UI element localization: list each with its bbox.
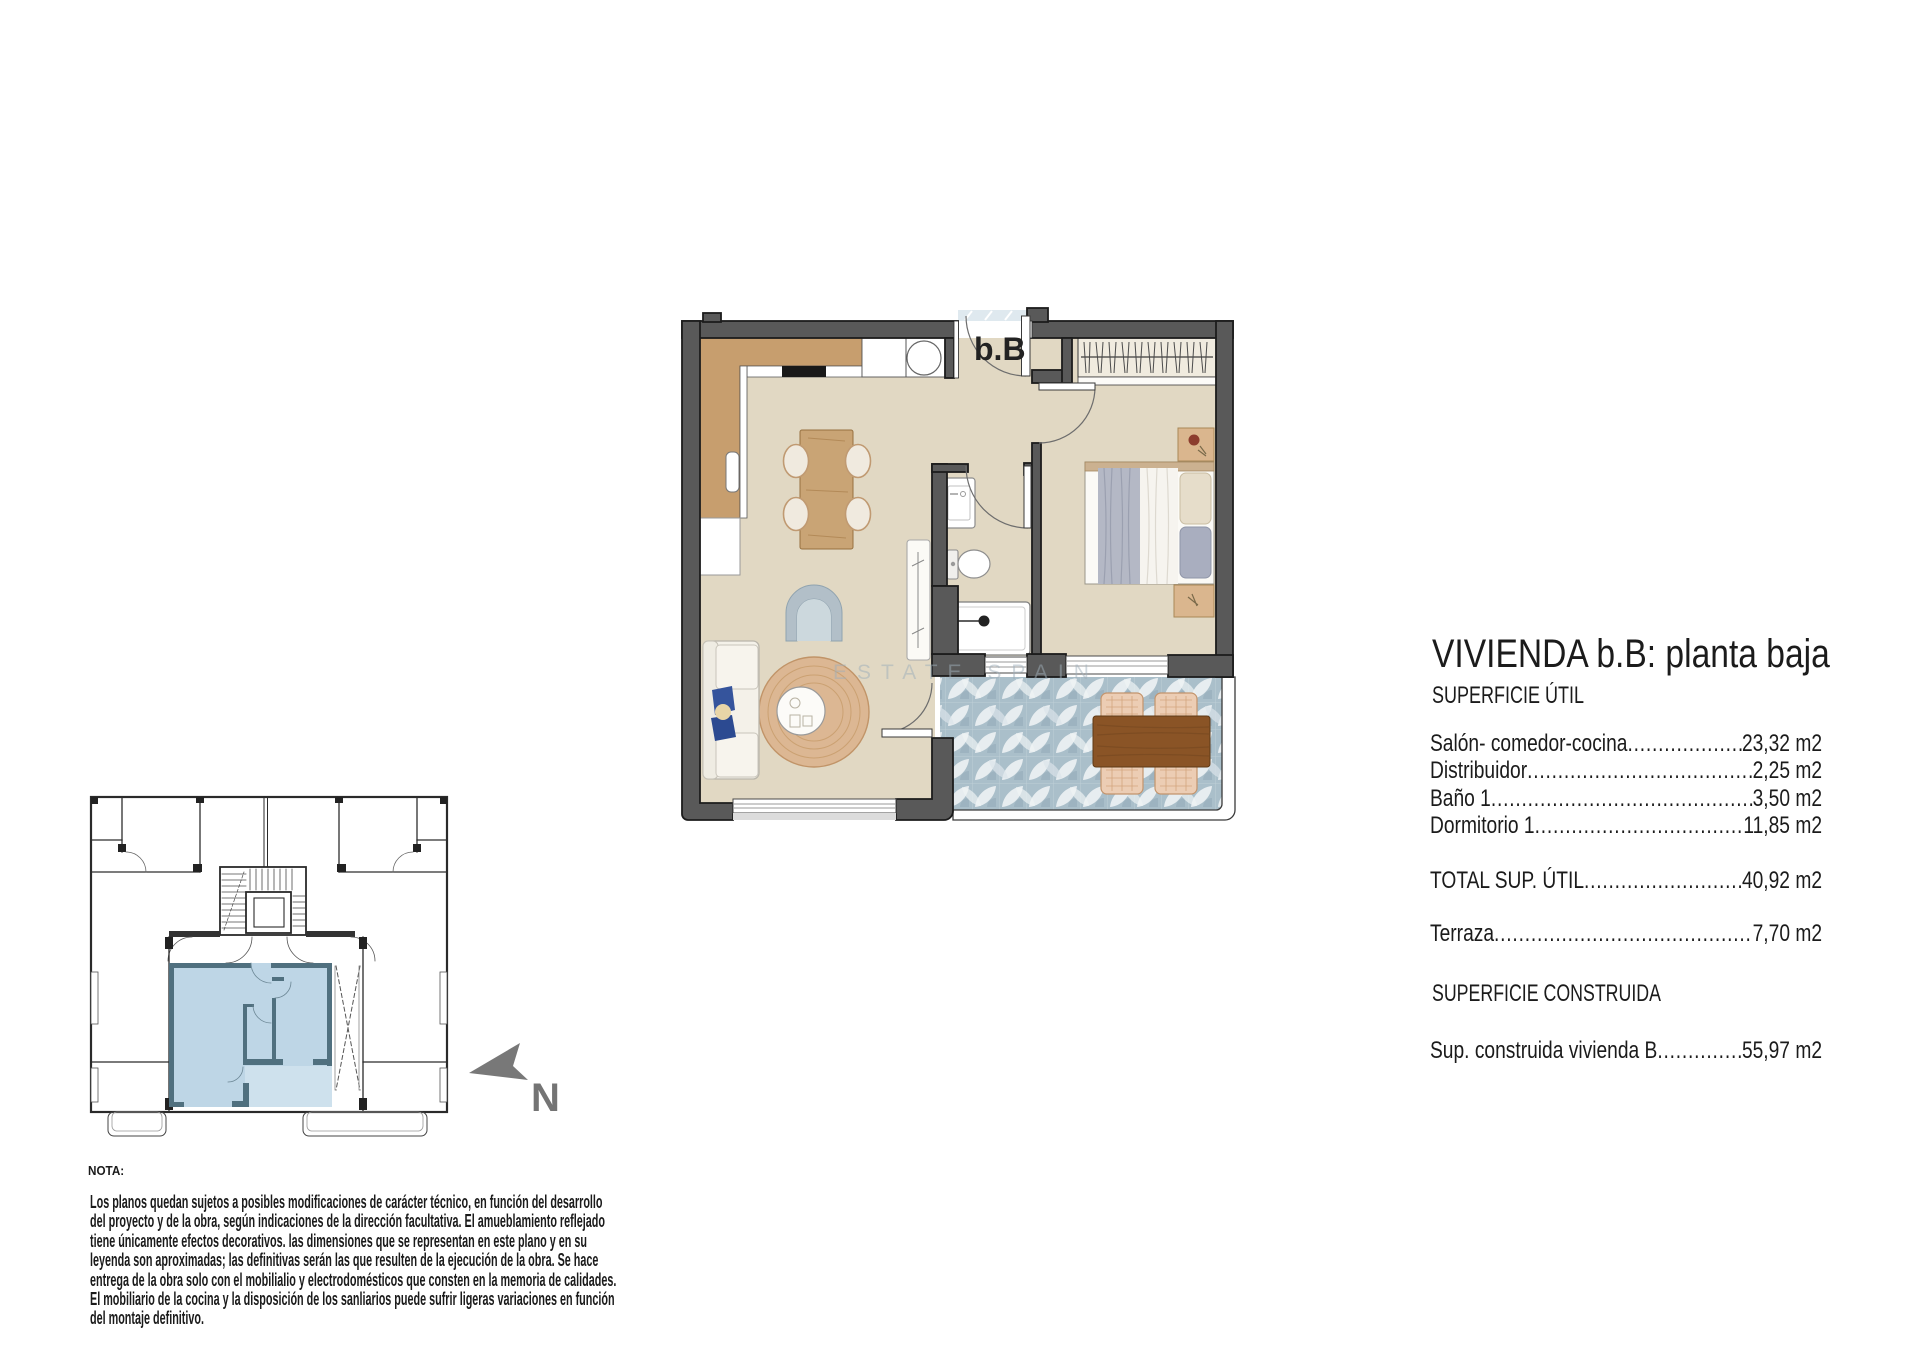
svg-text:ESTATE SPAIN: ESTATE SPAIN bbox=[833, 661, 1099, 684]
svg-text:b.B: b.B bbox=[974, 331, 1026, 367]
svg-text:N: N bbox=[531, 1076, 560, 1120]
